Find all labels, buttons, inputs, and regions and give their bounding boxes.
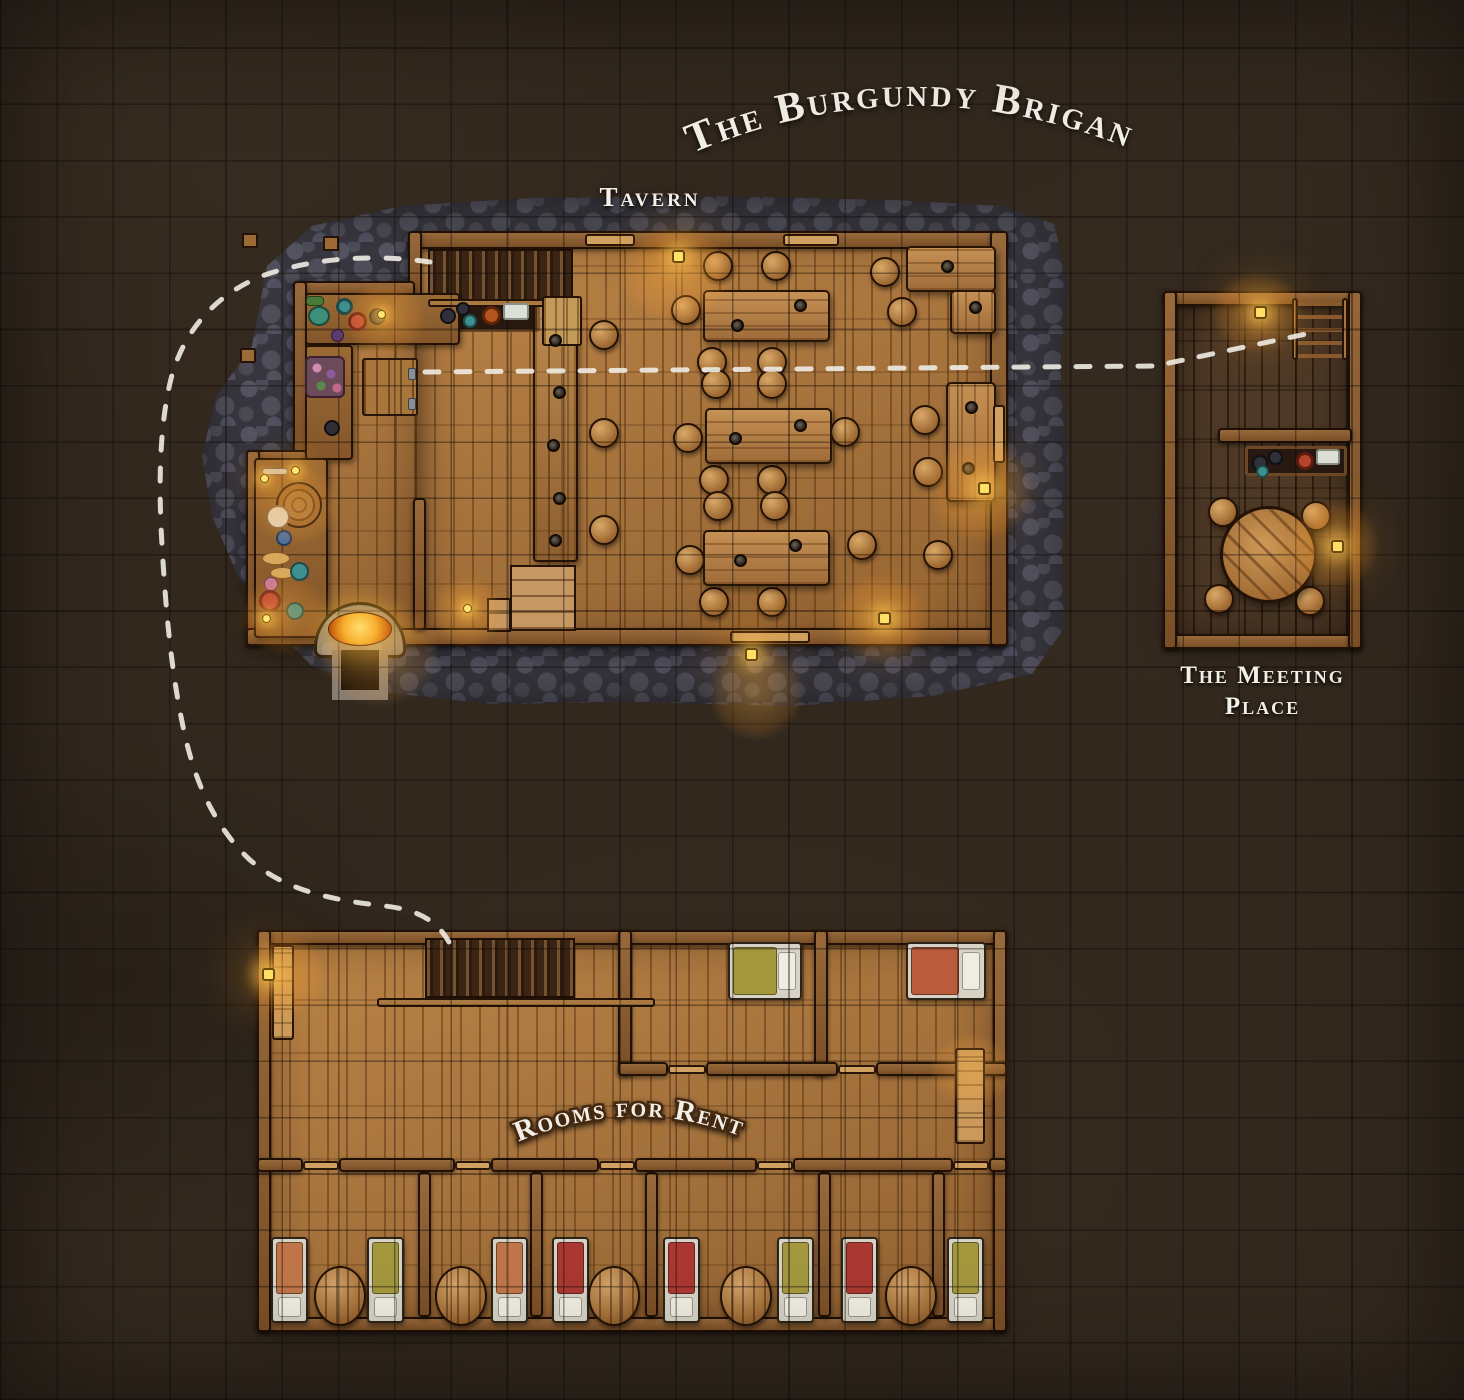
rooms-row-wall bbox=[635, 1158, 757, 1172]
room-door bbox=[303, 1161, 339, 1170]
bed bbox=[906, 942, 986, 1000]
stool bbox=[589, 320, 619, 350]
mug bbox=[549, 534, 562, 547]
fireplace-fire bbox=[328, 612, 392, 646]
bread-loaf bbox=[262, 552, 290, 565]
fireplace-opening bbox=[332, 650, 388, 700]
ladder-rail bbox=[1292, 298, 1298, 360]
floor-steps-low bbox=[487, 598, 511, 632]
tavern-top-door bbox=[585, 234, 635, 246]
fence-post bbox=[242, 233, 258, 248]
bed bbox=[777, 1237, 814, 1323]
meeting-label-line1: The Meeting bbox=[1155, 660, 1370, 691]
stool bbox=[913, 457, 943, 487]
pink-bowl bbox=[264, 577, 278, 591]
mug bbox=[553, 386, 566, 399]
rooms-wall-left bbox=[257, 930, 271, 1332]
rooms-row-wall bbox=[339, 1158, 455, 1172]
barrel-table bbox=[720, 1266, 772, 1326]
fence-post bbox=[240, 348, 256, 363]
stool bbox=[761, 251, 791, 281]
meeting-label-line2: Place bbox=[1155, 691, 1370, 722]
wall-lantern bbox=[878, 612, 891, 625]
candle bbox=[260, 474, 269, 483]
room-divider bbox=[418, 1172, 431, 1317]
stool bbox=[870, 257, 900, 287]
rooms-row-wall bbox=[989, 1158, 1007, 1172]
staircase-rail bbox=[377, 998, 655, 1007]
mug bbox=[729, 432, 742, 445]
teal-stack bbox=[290, 562, 309, 581]
mug bbox=[941, 260, 954, 273]
bedroom-wall bbox=[618, 1062, 668, 1076]
mug bbox=[962, 462, 975, 475]
rooms-staircase bbox=[425, 938, 575, 998]
bed bbox=[947, 1237, 984, 1323]
room-door bbox=[455, 1161, 491, 1170]
hatch-hinge bbox=[408, 398, 416, 410]
barrel-table bbox=[314, 1266, 366, 1326]
red-plate bbox=[259, 590, 281, 612]
kitchen-divider-wall bbox=[413, 498, 426, 630]
room-door bbox=[953, 1161, 989, 1170]
stool bbox=[760, 491, 790, 521]
mug bbox=[794, 419, 807, 432]
tavern-bottom-door bbox=[730, 631, 810, 643]
tavern-right-door bbox=[993, 405, 1005, 463]
greens bbox=[306, 296, 324, 306]
tavern-top-door-2 bbox=[783, 234, 839, 246]
barrel-table bbox=[885, 1266, 937, 1326]
mug bbox=[547, 439, 560, 452]
stool bbox=[847, 530, 877, 560]
bed bbox=[841, 1237, 878, 1323]
stool bbox=[703, 491, 733, 521]
mug bbox=[734, 554, 747, 567]
rooms-row-wall bbox=[257, 1158, 303, 1172]
bedroom-door bbox=[668, 1065, 706, 1074]
rooms-wall-top bbox=[257, 930, 1007, 945]
fence-post bbox=[323, 236, 339, 251]
dining-table bbox=[705, 408, 832, 464]
stool bbox=[923, 540, 953, 570]
mug bbox=[794, 299, 807, 312]
room-divider bbox=[530, 1172, 543, 1317]
wall-lantern bbox=[978, 482, 991, 495]
eggplant bbox=[331, 329, 344, 342]
mug bbox=[549, 334, 562, 347]
room-door bbox=[599, 1161, 635, 1170]
barrel-table bbox=[588, 1266, 640, 1326]
barrel-table bbox=[435, 1266, 487, 1326]
blue-bowl bbox=[276, 530, 292, 546]
candle bbox=[291, 466, 300, 475]
kitchen-door bbox=[542, 296, 582, 346]
red-plate bbox=[348, 312, 367, 331]
meeting-counter-beam bbox=[1218, 428, 1352, 443]
wall-lantern bbox=[745, 648, 758, 661]
mug bbox=[789, 539, 802, 552]
stool bbox=[671, 295, 701, 325]
teal-plate bbox=[463, 314, 477, 328]
mug bbox=[731, 319, 744, 332]
stool bbox=[910, 405, 940, 435]
rooms-wall-right bbox=[993, 930, 1007, 1332]
stool bbox=[589, 418, 619, 448]
stool bbox=[1204, 584, 1234, 614]
teal-plate bbox=[1256, 465, 1269, 478]
red-pot bbox=[1296, 452, 1314, 470]
bed bbox=[491, 1237, 528, 1323]
meeting-wall-right bbox=[1348, 291, 1362, 649]
dining-table bbox=[703, 530, 830, 586]
stool bbox=[703, 251, 733, 281]
map-title: The Burgundy Brigand bbox=[0, 0, 1142, 163]
bedroom-wall bbox=[814, 930, 828, 1076]
floor-steps bbox=[510, 565, 576, 631]
mug bbox=[969, 301, 982, 314]
stool bbox=[887, 297, 917, 327]
bedroom-wall bbox=[876, 1062, 1007, 1076]
plate-stack bbox=[1316, 449, 1340, 465]
teapot bbox=[308, 306, 330, 326]
tavern-battle-map: The Burgundy Brigand Rooms for Rent Tave… bbox=[0, 0, 1464, 1400]
stool bbox=[701, 369, 731, 399]
candle bbox=[463, 604, 472, 613]
hatch-hinge bbox=[408, 368, 416, 380]
bed bbox=[367, 1237, 404, 1323]
room-door bbox=[757, 1161, 793, 1170]
mug bbox=[553, 492, 566, 505]
rooms-row-wall bbox=[793, 1158, 953, 1172]
flower-basket bbox=[305, 356, 345, 398]
stool bbox=[673, 423, 703, 453]
teal-plate bbox=[286, 602, 304, 620]
pan bbox=[440, 308, 456, 324]
room-divider bbox=[645, 1172, 658, 1317]
wall-lantern bbox=[1254, 306, 1267, 319]
wall-lantern bbox=[262, 968, 275, 981]
meeting-label: The Meeting Place bbox=[1155, 660, 1370, 722]
stool bbox=[675, 545, 705, 575]
copper-pot bbox=[482, 306, 501, 325]
stool bbox=[699, 587, 729, 617]
dark-bowl bbox=[324, 420, 340, 436]
round-table bbox=[1220, 506, 1317, 603]
bed bbox=[552, 1237, 589, 1323]
bed bbox=[728, 942, 802, 1000]
mug bbox=[965, 401, 978, 414]
ladder-rail bbox=[1342, 298, 1348, 360]
candle bbox=[377, 310, 386, 319]
wall-lantern bbox=[672, 250, 685, 263]
stool bbox=[830, 417, 860, 447]
bed bbox=[663, 1237, 700, 1323]
meeting-wall-left bbox=[1163, 291, 1177, 649]
stool bbox=[757, 369, 787, 399]
bedroom-wall bbox=[706, 1062, 838, 1076]
bread-plate bbox=[266, 505, 290, 529]
teal-plate bbox=[336, 298, 353, 315]
rooms-row-wall bbox=[491, 1158, 599, 1172]
wall-lantern bbox=[1331, 540, 1344, 553]
room-divider bbox=[818, 1172, 831, 1317]
wall-bench bbox=[272, 945, 294, 1040]
bed bbox=[271, 1237, 308, 1323]
candle bbox=[262, 614, 271, 623]
ladder bbox=[1294, 300, 1347, 358]
stool bbox=[589, 515, 619, 545]
meeting-wall-bottom bbox=[1163, 634, 1362, 649]
pan bbox=[1268, 450, 1283, 465]
dining-table bbox=[703, 290, 830, 342]
plate-stack bbox=[503, 303, 529, 320]
wall-bench bbox=[955, 1048, 985, 1144]
stool bbox=[757, 587, 787, 617]
bedroom-door bbox=[838, 1065, 876, 1074]
